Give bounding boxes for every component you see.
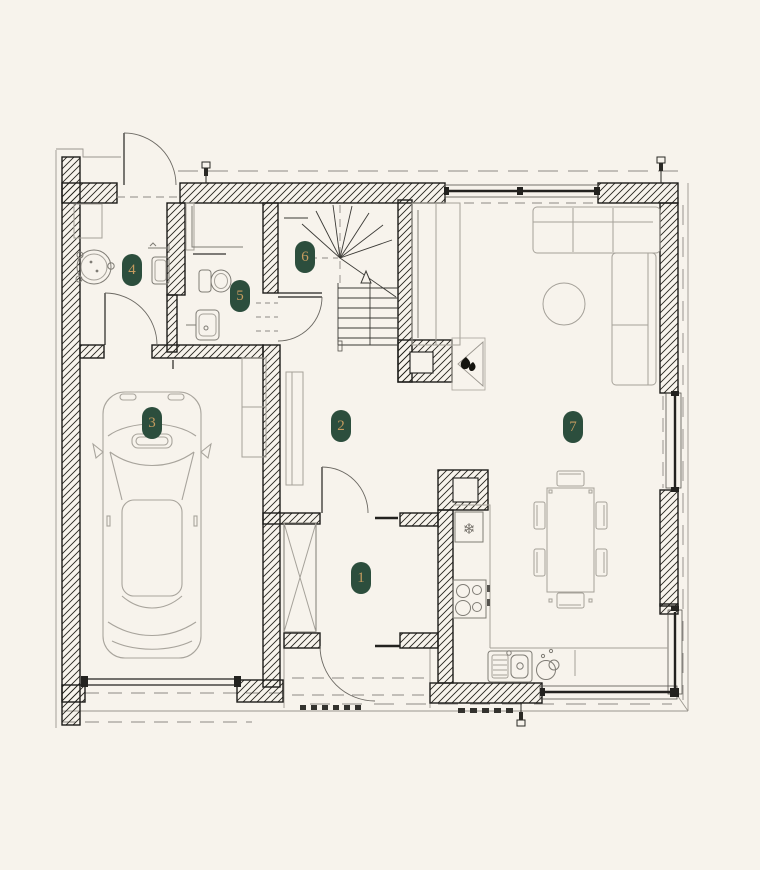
room-badge-3-number: 3 — [148, 416, 156, 431]
floor-plan: ❄ — [0, 0, 760, 870]
fridge-icon: ❄ — [455, 512, 483, 542]
entry-door-top — [117, 133, 180, 197]
wall-lamp-icon — [517, 702, 525, 726]
kitchen-counter — [453, 505, 668, 648]
dining-chair — [557, 593, 584, 608]
bathroom-fixtures — [186, 203, 243, 340]
coffee-table — [543, 283, 585, 325]
room-badge-1-number: 1 — [357, 571, 365, 586]
porch — [284, 648, 430, 708]
utility-door — [105, 293, 157, 345]
stair-direction-arrow — [361, 271, 371, 283]
room-badge-1: 1 — [351, 562, 371, 594]
room-badge-5: 5 — [230, 280, 250, 312]
room-badge-3: 3 — [142, 407, 162, 439]
room-badge-4-number: 4 — [128, 263, 136, 278]
window-right — [666, 391, 681, 492]
closet-x — [284, 523, 316, 632]
boiler-icon — [76, 250, 114, 284]
stairs — [284, 205, 398, 351]
dining-set — [534, 471, 607, 608]
floor-plan-page: ❄ — [0, 0, 760, 870]
utility-sink-icon — [148, 243, 169, 284]
fireplace — [452, 338, 485, 390]
room-badge-6-number: 6 — [301, 250, 309, 265]
wall-lamp-icon — [202, 162, 210, 183]
dishwasher-icon — [537, 649, 560, 679]
room-badge-7-number: 7 — [569, 420, 577, 435]
stair-winders — [302, 205, 392, 258]
dining-chair — [557, 471, 584, 486]
stove-icon — [453, 580, 490, 618]
garage-door — [81, 676, 241, 687]
room-badge-6: 6 — [295, 241, 315, 273]
bathroom-sink-icon — [186, 310, 219, 340]
bathroom-door — [256, 293, 322, 341]
duct — [186, 203, 194, 250]
window-corner — [540, 606, 682, 699]
wardrobe — [412, 203, 460, 345]
room-badge-4: 4 — [122, 254, 142, 286]
hall-cabinet — [286, 372, 303, 485]
room-badge-2-number: 2 — [337, 419, 345, 434]
window-top — [444, 185, 600, 197]
dining-table — [547, 488, 594, 592]
toilet-icon — [199, 270, 231, 292]
room-badge-2: 2 — [331, 410, 351, 442]
dining-chair — [596, 549, 607, 576]
step-grate — [458, 708, 513, 713]
hall-entry-door — [322, 467, 368, 513]
room-badge-5-number: 5 — [236, 289, 244, 304]
room-badge-7: 7 — [563, 411, 583, 443]
dining-chair — [534, 549, 545, 576]
front-door — [320, 646, 400, 701]
snowflake-icon: ❄ — [463, 521, 476, 538]
dining-chair — [596, 502, 607, 529]
sofa — [533, 207, 660, 385]
wall-lamp-icon — [657, 157, 665, 183]
step-grate — [300, 705, 361, 710]
kitchen-sink-icon — [488, 651, 532, 682]
exterior-walls — [62, 157, 678, 725]
dining-chair — [534, 502, 545, 529]
